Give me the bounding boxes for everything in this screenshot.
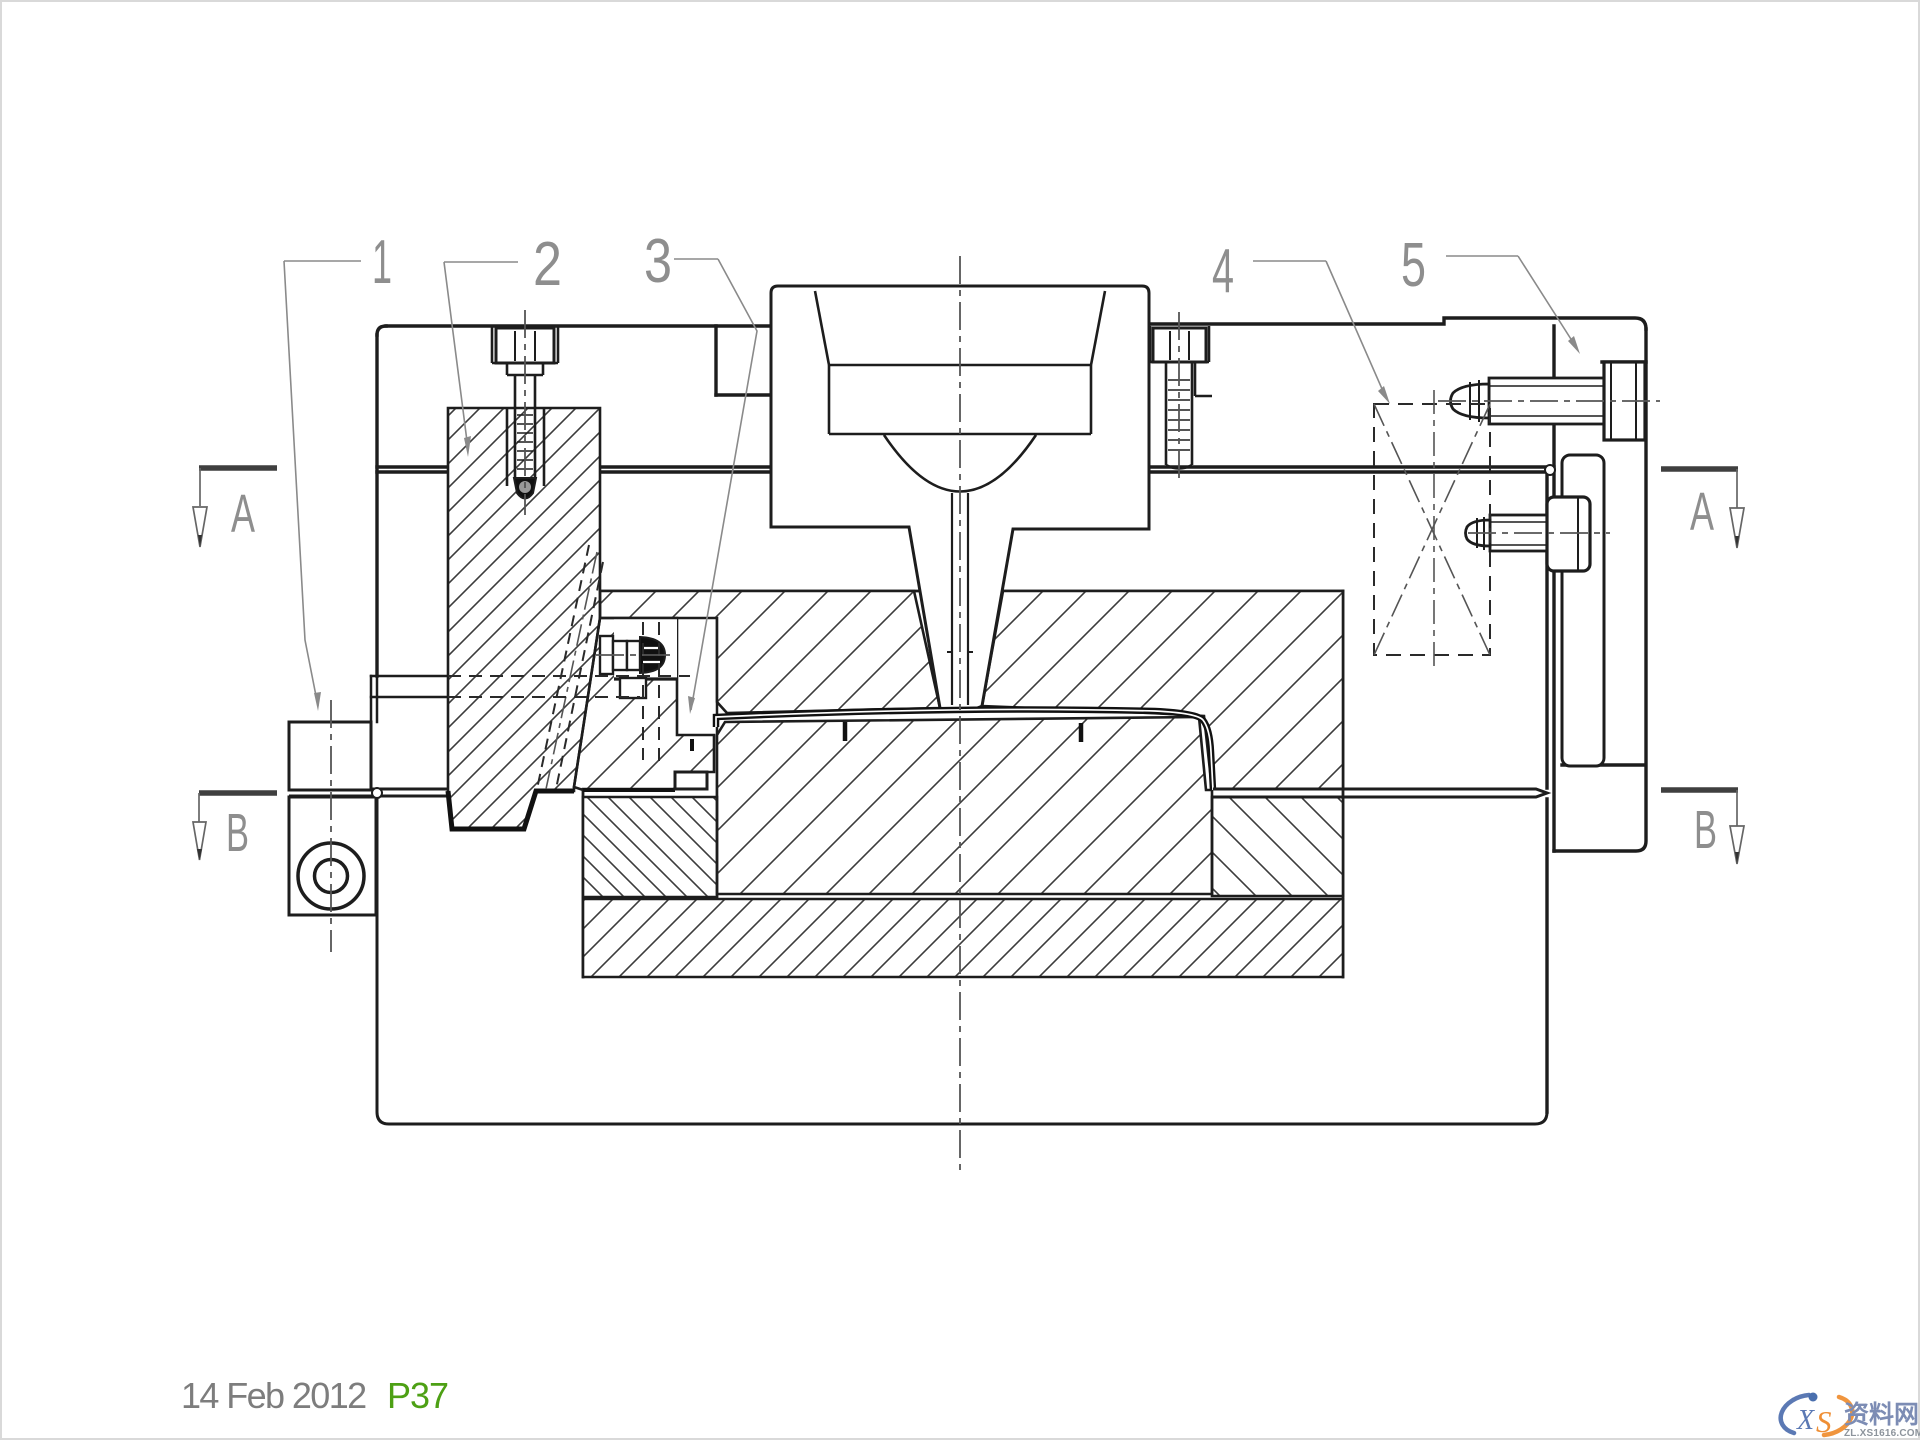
svg-text:2: 2 <box>533 230 562 299</box>
svg-text:3: 3 <box>644 227 672 296</box>
svg-text:P37: P37 <box>387 1375 448 1416</box>
svg-text:1: 1 <box>372 228 392 297</box>
svg-text:14 Feb 2012: 14 Feb 2012 <box>181 1375 366 1416</box>
svg-text:A: A <box>231 484 255 544</box>
svg-text:4: 4 <box>1212 237 1234 306</box>
svg-text:A: A <box>1690 482 1714 542</box>
svg-text:S: S <box>1816 1404 1832 1439</box>
svg-text:X: X <box>1796 1405 1815 1436</box>
svg-text:ZL.XS1616.COM: ZL.XS1616.COM <box>1844 1428 1920 1439</box>
svg-text:B: B <box>226 803 249 863</box>
svg-text:资料网: 资料网 <box>1844 1401 1919 1429</box>
svg-text:5: 5 <box>1401 231 1426 300</box>
svg-text:B: B <box>1694 800 1717 860</box>
